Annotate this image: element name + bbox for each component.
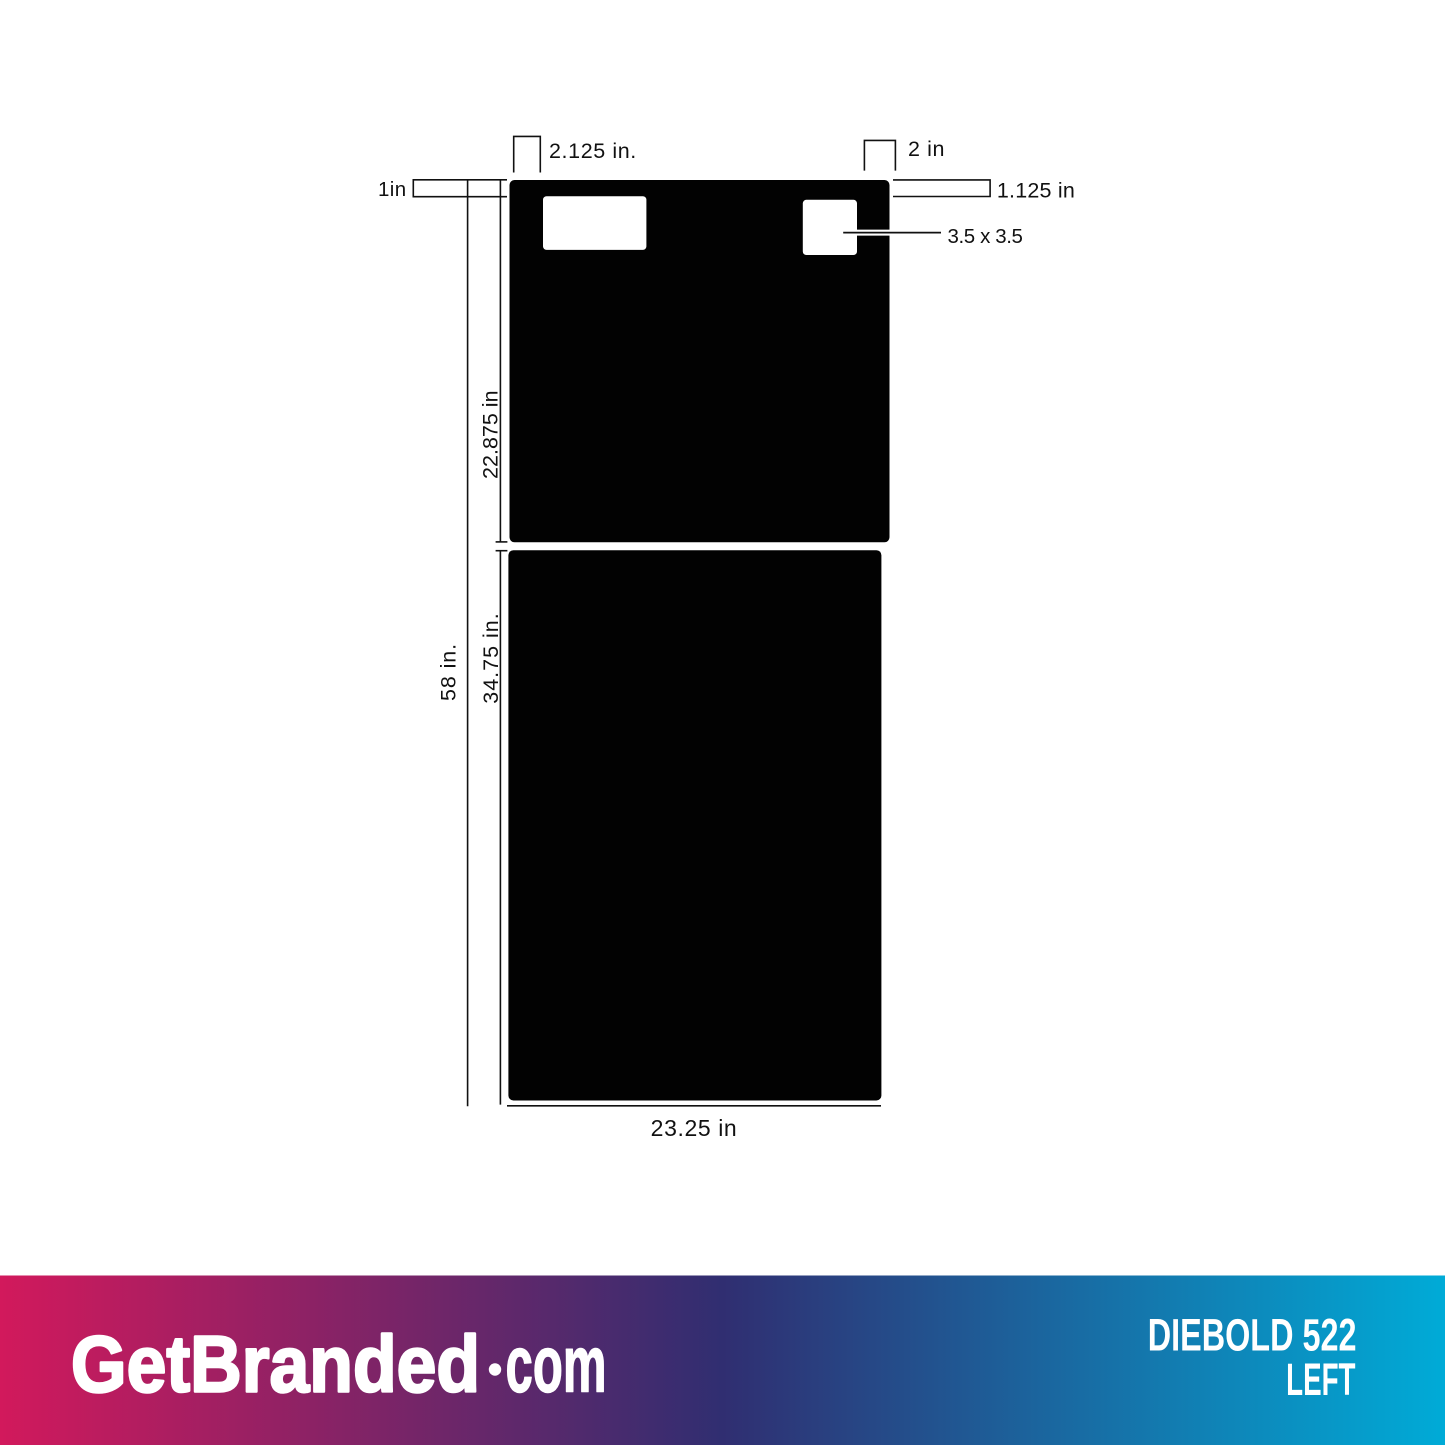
svg-text:58 in.: 58 in.: [437, 643, 461, 701]
svg-text:2.125 in.: 2.125 in.: [549, 139, 637, 163]
svg-text:34.75 in.: 34.75 in.: [479, 612, 503, 703]
svg-text:1in: 1in: [378, 178, 407, 201]
svg-text:LEFT: LEFT: [1286, 1354, 1355, 1405]
svg-text:1.125 in: 1.125 in: [997, 179, 1075, 203]
svg-text:com: com: [506, 1320, 607, 1409]
svg-text:2 in: 2 in: [908, 137, 945, 161]
svg-text:3.5 x 3.5: 3.5 x 3.5: [948, 225, 1023, 248]
svg-text:GetBranded: GetBranded: [71, 1320, 480, 1409]
svg-text:22.875 in: 22.875 in: [479, 390, 503, 478]
svg-text:23.25 in: 23.25 in: [651, 1115, 738, 1141]
